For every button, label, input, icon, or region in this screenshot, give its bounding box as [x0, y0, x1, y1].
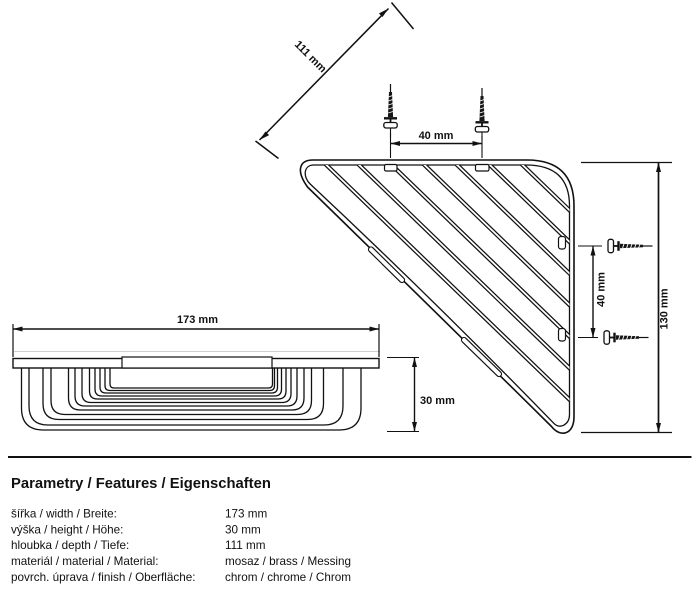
- svg-text:mosaz / brass / Messing: mosaz / brass / Messing: [225, 555, 351, 568]
- svg-text:chrom / chrome / Chrom: chrom / chrome / Chrom: [225, 571, 351, 584]
- svg-text:40 mm: 40 mm: [596, 272, 608, 307]
- svg-text:30 mm: 30 mm: [225, 523, 261, 536]
- svg-text:materiál / material / Material: materiál / material / Material:: [11, 555, 158, 568]
- svg-text:povrch. úprava / finish / Ober: povrch. úprava / finish / Oberfläche:: [11, 571, 196, 584]
- svg-text:173 mm: 173 mm: [225, 508, 267, 521]
- svg-text:Parametry / Features / Eigensc: Parametry / Features / Eigenschaften: [11, 476, 271, 492]
- svg-text:111 mm: 111 mm: [225, 539, 265, 552]
- svg-text:111 mm: 111 mm: [292, 39, 329, 76]
- svg-text:šířka / width / Breite:: šířka / width / Breite:: [11, 508, 117, 521]
- svg-text:výška / height / Höhe:: výška / height / Höhe:: [11, 523, 123, 536]
- svg-text:173 mm: 173 mm: [177, 314, 218, 326]
- svg-text:130 mm: 130 mm: [659, 288, 671, 329]
- svg-text:30 mm: 30 mm: [420, 395, 455, 407]
- svg-text:40 mm: 40 mm: [419, 130, 454, 142]
- svg-text:hloubka / depth / Tiefe:: hloubka / depth / Tiefe:: [11, 539, 129, 552]
